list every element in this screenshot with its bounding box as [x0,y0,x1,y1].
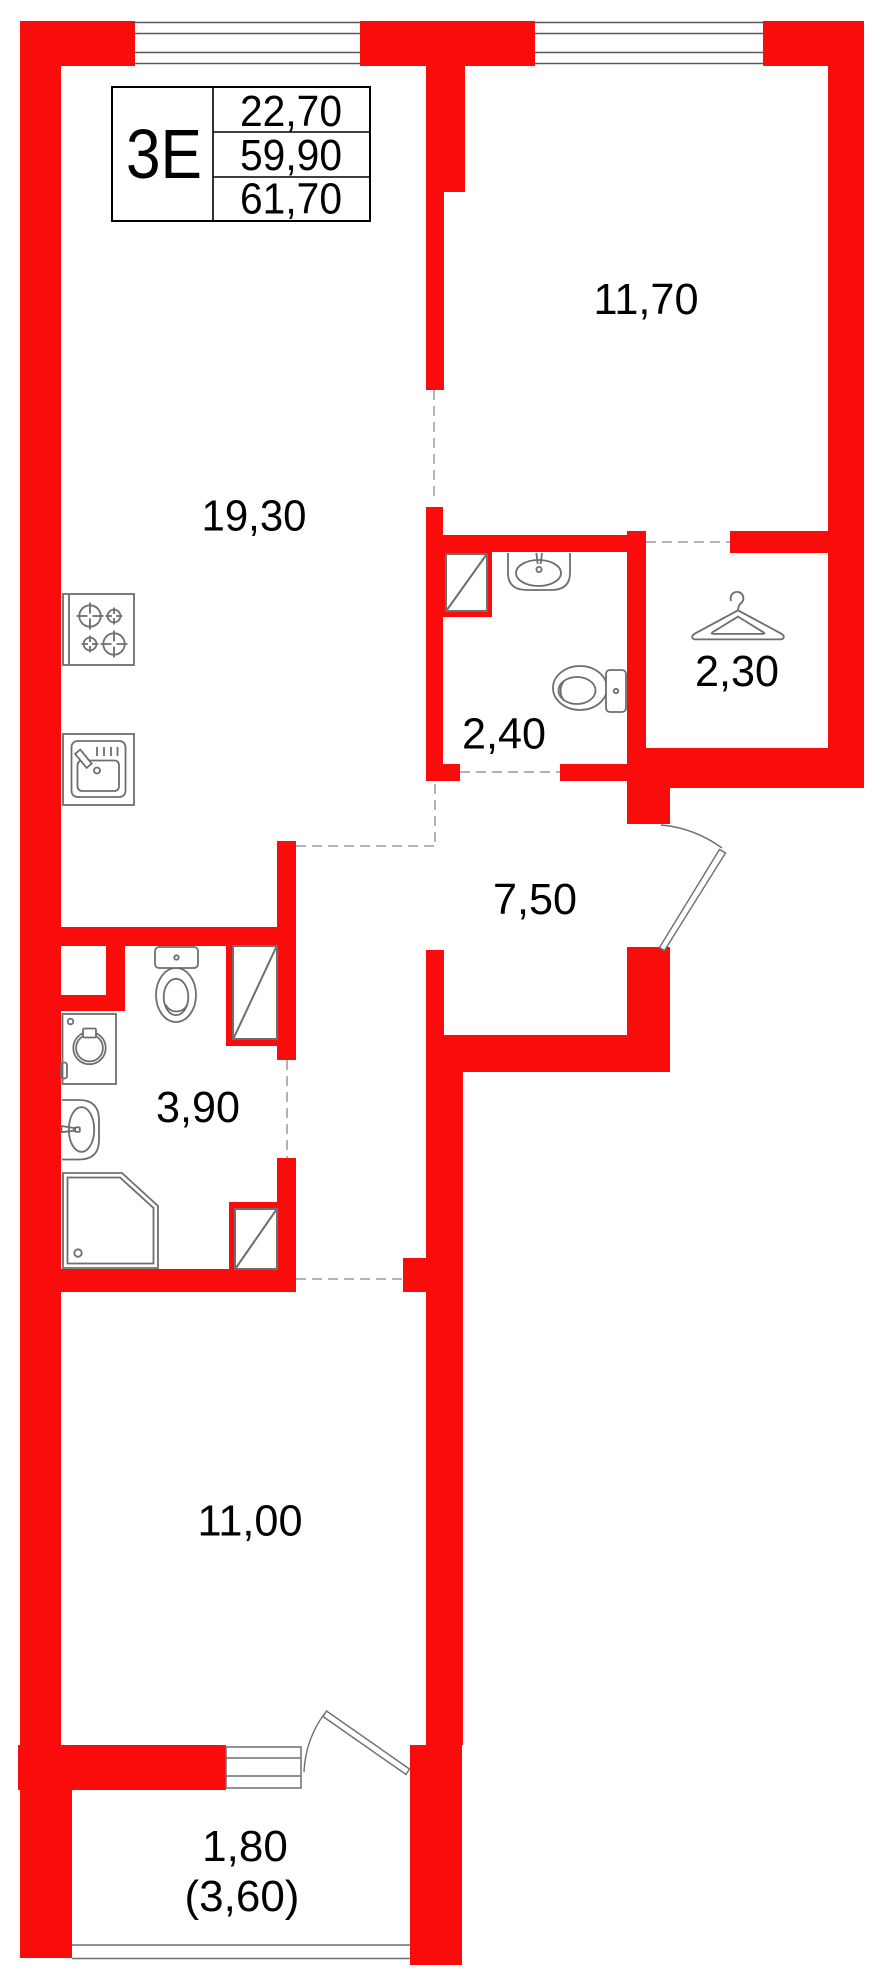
svg-text:2,30: 2,30 [695,647,779,696]
svg-text:11,70: 11,70 [594,275,699,324]
svg-text:1,80: 1,80 [202,1822,288,1871]
svg-text:19,30: 19,30 [202,492,307,541]
svg-text:11,00: 11,00 [198,1497,303,1546]
svg-text:61,70: 61,70 [240,175,342,224]
svg-text:22,70: 22,70 [240,87,342,136]
svg-text:2,40: 2,40 [462,710,546,759]
svg-text:59,90: 59,90 [240,131,342,180]
svg-text:(3,60): (3,60) [185,1872,300,1921]
svg-text:3,90: 3,90 [156,1083,240,1132]
svg-text:7,50: 7,50 [493,875,577,924]
svg-text:3Е: 3Е [126,115,202,193]
